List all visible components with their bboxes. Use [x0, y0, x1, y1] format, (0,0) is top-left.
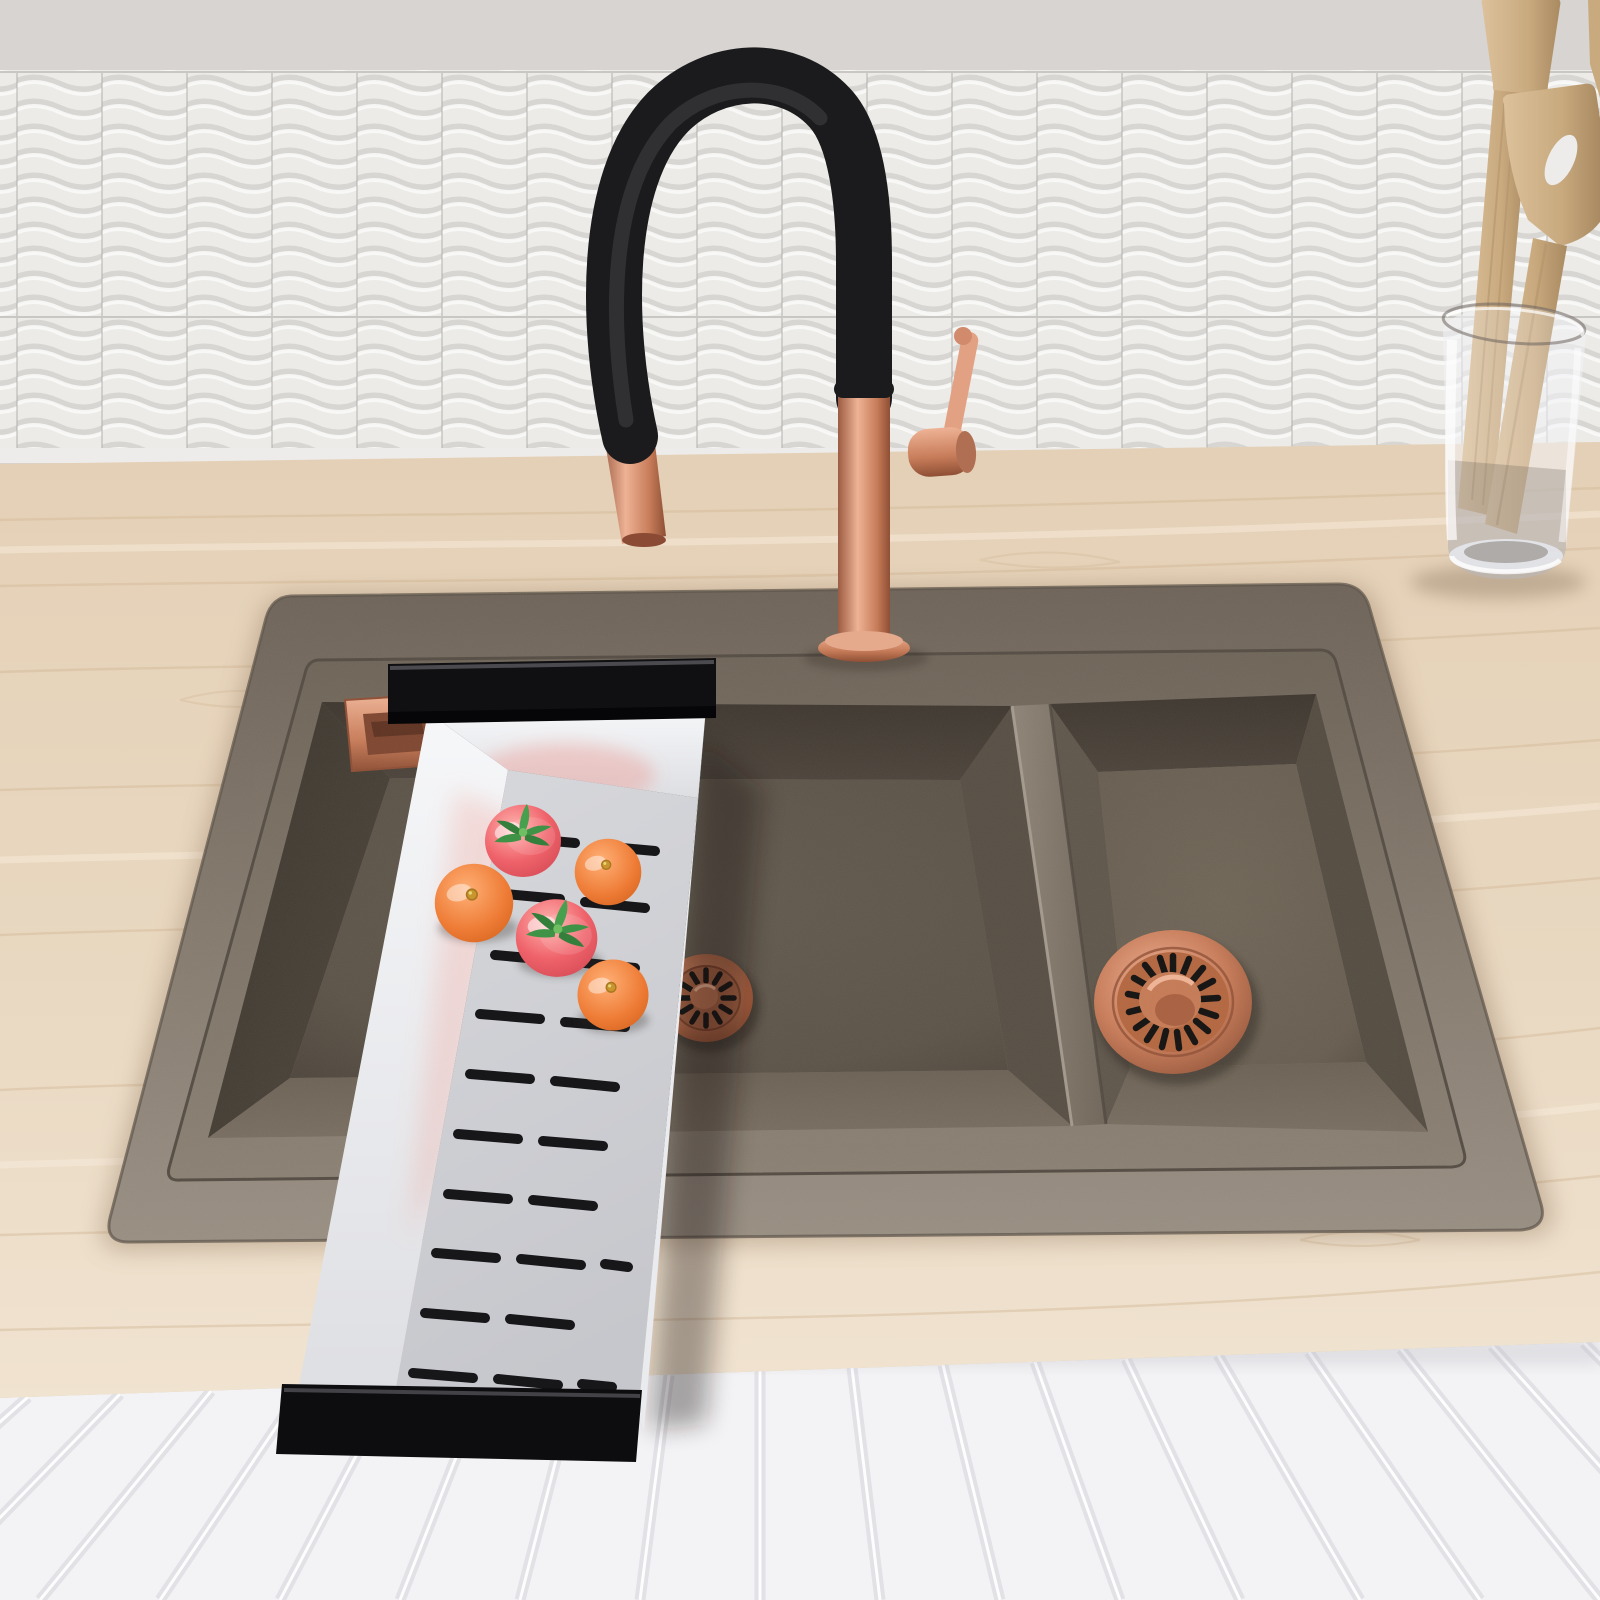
orange-1: [435, 864, 513, 942]
sink: [96, 580, 1566, 1255]
orange-3: [577, 959, 648, 1030]
riser-black-collar: [834, 380, 894, 398]
faucet-base-top: [825, 631, 903, 651]
glass-front: [1442, 299, 1587, 579]
scene-canvas: [0, 0, 1600, 1600]
spout-opening: [622, 533, 666, 547]
colander-handle-bottom: [276, 1384, 642, 1462]
handle-lever-cap: [954, 327, 972, 345]
glass-base-inner: [1464, 541, 1548, 563]
granite-texture: [96, 580, 1566, 1255]
tile-tint: [0, 70, 1600, 452]
kitchen-sink-render: [0, 0, 1600, 1600]
orange-2: [575, 839, 642, 906]
colander-handle-top: [388, 658, 716, 724]
glass-streak-left: [1450, 340, 1452, 540]
tile-backsplash: [0, 70, 1600, 452]
